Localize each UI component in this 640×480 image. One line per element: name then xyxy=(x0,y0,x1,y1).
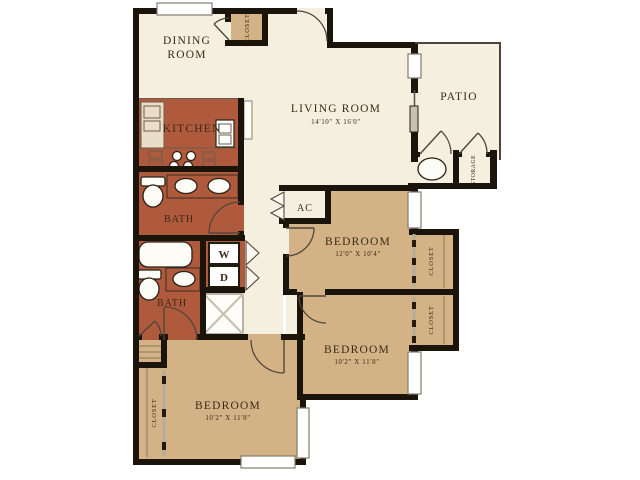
wall xyxy=(133,235,205,241)
closet-bedroom-left-label: CLOSET xyxy=(151,398,158,427)
closet-slider-stop xyxy=(162,376,166,384)
window xyxy=(297,408,309,458)
floor-plan: DINING ROOM KITCHEN LIVING ROOM 14'10" X… xyxy=(0,0,640,480)
entry-closet-label: CLOSET xyxy=(244,13,251,42)
living-room-dims: 14'10" X 16'0" xyxy=(311,118,361,126)
closet-slider-stop xyxy=(412,302,416,309)
window xyxy=(157,3,212,15)
bedroom-left-dims: 10'2" X 11'8" xyxy=(205,414,250,422)
sink-icon xyxy=(175,179,197,194)
living-room-label: LIVING ROOM xyxy=(291,103,381,115)
stove-burner xyxy=(173,152,182,161)
wall xyxy=(133,166,244,172)
closet-right-upper-label: CLOSET xyxy=(428,246,435,275)
wall xyxy=(283,254,289,295)
wall xyxy=(133,362,167,368)
bedroom-right-lower-dims: 10'2" X 11'8" xyxy=(334,358,379,366)
wall xyxy=(411,130,418,162)
patio-slider-panel xyxy=(410,106,418,132)
bath-lower-label: BATH xyxy=(157,298,187,309)
dining-room-label: DINING xyxy=(163,35,211,47)
bedroom-right-upper-label: BEDROOM xyxy=(325,236,391,248)
stove-burner xyxy=(187,152,196,161)
wall xyxy=(196,334,248,340)
wall xyxy=(283,289,297,295)
patio-label: PATIO xyxy=(440,91,478,103)
window xyxy=(408,352,421,394)
bedroom-left-doorway-floor xyxy=(248,334,281,342)
bedroom-right-lower-label: BEDROOM xyxy=(324,344,390,356)
toilet-bowl-icon xyxy=(139,278,159,300)
closet-slider-stop xyxy=(162,442,166,450)
closet-slider-stop xyxy=(412,276,416,283)
wall xyxy=(453,229,459,295)
closet-slider-stop xyxy=(412,320,416,327)
linen-doorway-floor xyxy=(139,334,161,340)
window xyxy=(408,54,421,78)
window xyxy=(408,192,421,228)
wall xyxy=(453,295,459,351)
bath-lower-doorway-floor xyxy=(164,334,198,340)
closet-slider-stop xyxy=(162,409,166,417)
floor-plan-canvas: DINING ROOM KITCHEN LIVING ROOM 14'10" X… xyxy=(0,0,640,480)
window xyxy=(241,456,295,468)
wall xyxy=(238,166,244,205)
wall xyxy=(225,8,231,22)
toilet-bowl-icon xyxy=(143,185,163,207)
sink-icon xyxy=(208,179,230,194)
wall xyxy=(297,394,418,400)
kitchen-bar-counter xyxy=(244,101,252,139)
wall xyxy=(408,183,497,189)
wall xyxy=(327,42,417,48)
wall xyxy=(203,287,245,293)
ac-closet-label: AC xyxy=(297,203,313,214)
closet-slider-stop xyxy=(412,240,416,247)
wall xyxy=(486,152,497,157)
closet-right-lower-label: CLOSET xyxy=(428,305,435,334)
water-heater-icon xyxy=(418,158,446,180)
kitchen-label: KITCHEN xyxy=(163,123,222,135)
bedroom-right-upper-dims: 12'0" X 10'4" xyxy=(335,250,381,258)
dryer-label: D xyxy=(220,272,228,284)
bath-upper-label: BATH xyxy=(164,214,194,225)
wall xyxy=(203,235,245,241)
bathtub-icon xyxy=(139,242,192,267)
dining-room-label: ROOM xyxy=(167,49,206,61)
bath-upper-doorway-floor xyxy=(238,203,244,233)
wall xyxy=(411,152,420,157)
sink-icon xyxy=(173,272,195,287)
washer-label: W xyxy=(219,249,230,261)
wall xyxy=(279,185,418,191)
wall xyxy=(325,289,459,295)
storage-label: STORAGE xyxy=(471,155,477,185)
wall xyxy=(238,98,244,172)
closet-slider-stop xyxy=(412,336,416,343)
closet-slider-stop xyxy=(412,258,416,265)
bedroom-left-label: BEDROOM xyxy=(195,400,261,412)
